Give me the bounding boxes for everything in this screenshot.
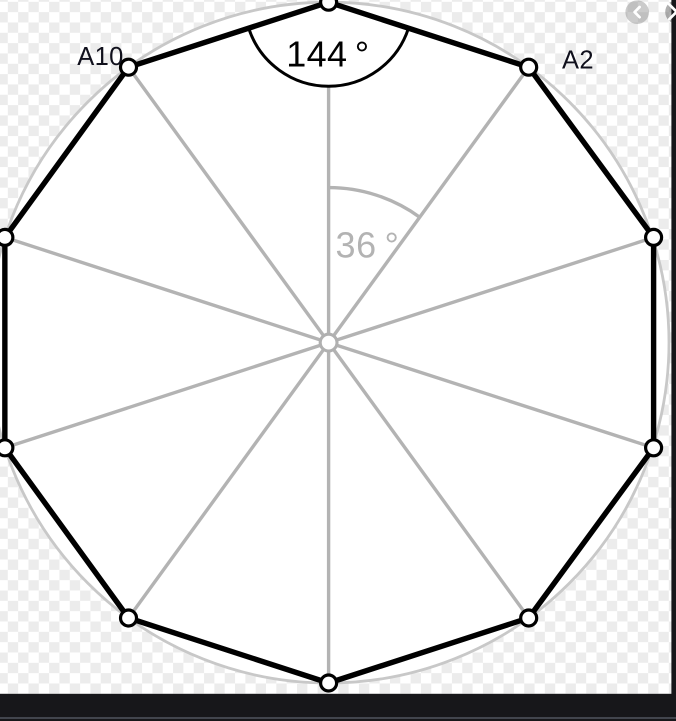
svg-text:A2: A2: [562, 47, 594, 75]
svg-text:144 °: 144 °: [286, 34, 369, 75]
svg-text:36 °: 36 °: [336, 225, 400, 266]
svg-text:A10: A10: [77, 43, 124, 71]
